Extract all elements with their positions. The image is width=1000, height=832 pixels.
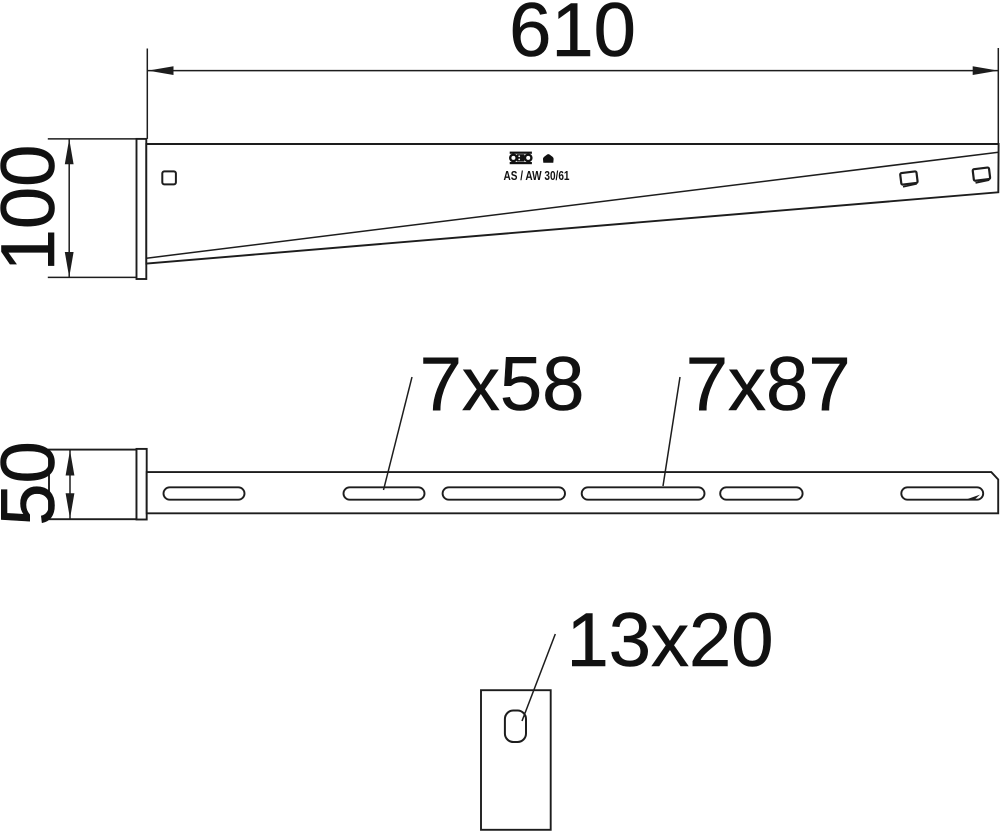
svg-text:AS / AW 30/61: AS / AW 30/61 <box>504 168 570 183</box>
svg-text:100: 100 <box>0 145 71 272</box>
svg-text:610: 610 <box>509 0 636 73</box>
svg-text:7x87: 7x87 <box>686 342 851 427</box>
svg-text:13x20: 13x20 <box>566 598 773 683</box>
svg-text:7x58: 7x58 <box>420 342 585 427</box>
svg-text:50: 50 <box>0 441 71 526</box>
